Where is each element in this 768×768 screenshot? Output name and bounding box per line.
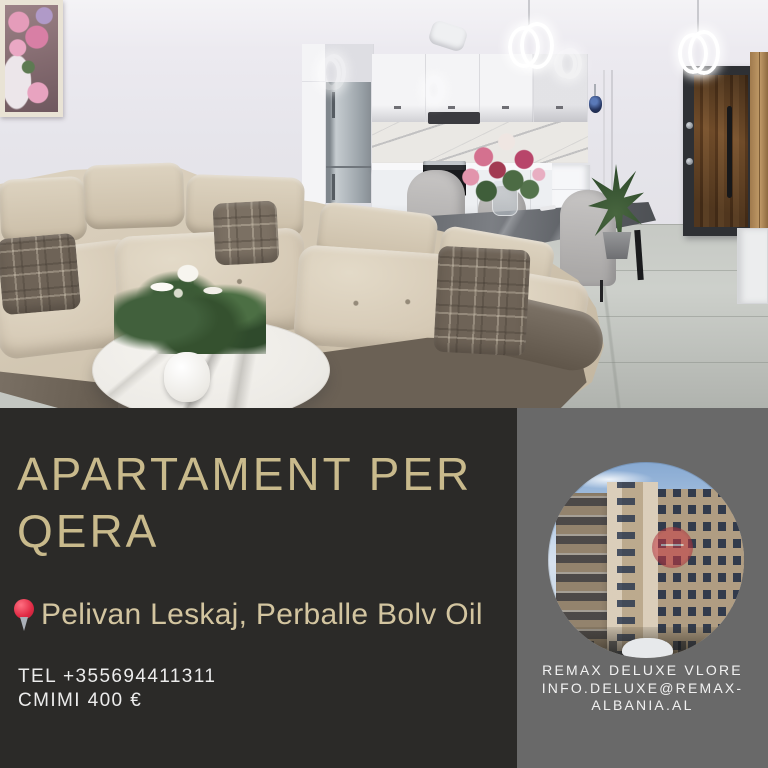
throw-pillow	[433, 246, 530, 357]
apartment-photo	[0, 0, 768, 408]
location-text: Pelivan Leskaj, Perballe Bolv Oil	[37, 595, 483, 635]
white-flowers	[138, 262, 234, 314]
light-reflection	[424, 76, 444, 98]
pin-head	[14, 599, 34, 619]
agency-panel: REMAX DELUXE VLORE INFO.DELUXE@REMAX- AL…	[517, 408, 768, 768]
pendant-light-icon	[678, 30, 720, 72]
wall-ornament	[589, 96, 602, 113]
wall-painting	[0, 0, 63, 117]
flyer-canvas: APARTAMENT PER QERA Pelivan Leskaj, Perb…	[0, 0, 768, 768]
phone-number: TEL +355694411311	[18, 665, 216, 689]
remax-watermark-icon	[652, 527, 693, 568]
door-lock	[686, 122, 693, 129]
building-photo	[548, 462, 744, 658]
light-reflection	[318, 54, 346, 86]
flyer-headline: APARTAMENT PER QERA	[17, 446, 490, 560]
sofa-headrest	[83, 162, 185, 229]
agency-name: REMAX DELUXE VLORE	[517, 662, 768, 680]
entry-door-slab	[694, 75, 748, 227]
parked-car	[622, 638, 673, 658]
wardrobe	[750, 52, 768, 248]
range-hood	[428, 112, 480, 124]
table-vase	[164, 352, 210, 402]
throw-pillow	[0, 233, 81, 316]
pendant-cord	[697, 0, 699, 34]
coffee-table-group	[92, 318, 334, 408]
location-pin-icon	[13, 599, 37, 635]
sofa-headrest	[0, 176, 88, 244]
ceiling-duct	[427, 19, 469, 53]
contact-block: TEL +355694411311 CMIMI 400 €	[18, 665, 216, 712]
door-lock	[686, 158, 693, 165]
shoe-cabinet	[737, 228, 768, 304]
location-row: Pelivan Leskaj, Perballe Bolv Oil	[13, 595, 483, 635]
agency-block: REMAX DELUXE VLORE INFO.DELUXE@REMAX- AL…	[517, 662, 768, 715]
agency-email-line2: ALBANIA.AL	[517, 697, 768, 715]
entry-door	[683, 66, 757, 236]
price: CMIMI 400 €	[18, 689, 216, 713]
door-pull-handle	[727, 106, 732, 198]
agency-email-line1: INFO.DELUXE@REMAX-	[517, 680, 768, 698]
pendant-light-icon	[508, 22, 554, 66]
light-reflection	[554, 48, 582, 74]
pin-needle	[20, 617, 28, 631]
throw-pillow	[212, 200, 279, 265]
